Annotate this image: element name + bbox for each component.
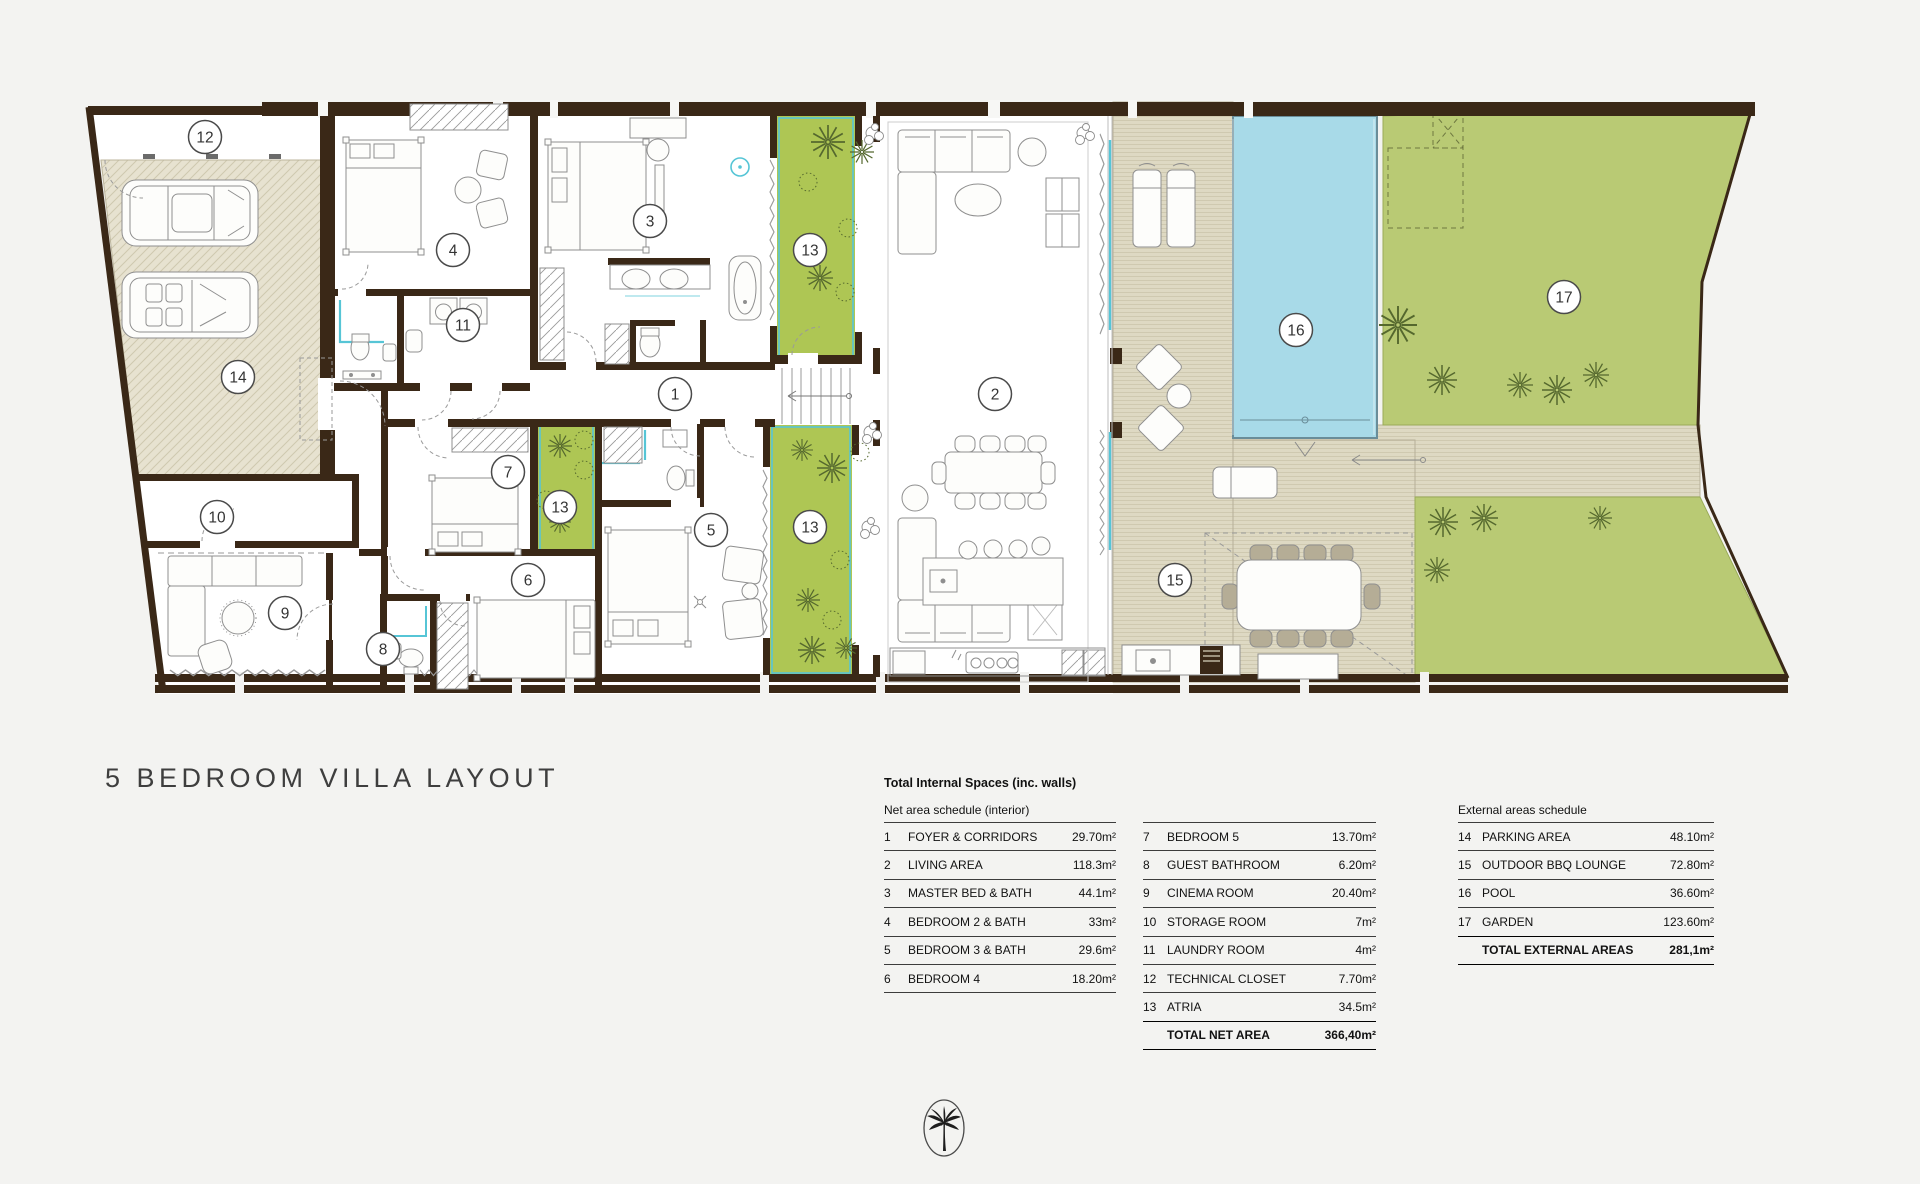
room-label-14: 14 [222, 361, 255, 394]
svg-text:2: 2 [991, 387, 1000, 404]
area-row: 9CINEMA ROOM20.40m² [1143, 879, 1376, 907]
area-row: 15OUTDOOR BBQ LOUNGE72.80m² [1458, 850, 1714, 878]
svg-text:9: 9 [281, 606, 290, 623]
svg-text:17: 17 [1555, 290, 1572, 307]
svg-text:5: 5 [707, 523, 716, 540]
room-label-2: 2 [979, 378, 1012, 411]
room-label-9: 9 [269, 597, 302, 630]
room-label-7: 7 [492, 456, 525, 489]
svg-text:10: 10 [208, 510, 226, 527]
svg-text:4: 4 [449, 243, 458, 260]
svg-text:14: 14 [229, 370, 247, 387]
car-convertible [122, 272, 258, 338]
room-label-13: 13 [794, 234, 827, 267]
area-row: 16POOL36.60m² [1458, 879, 1714, 907]
svg-text:13: 13 [801, 520, 818, 537]
room-label-10: 10 [201, 501, 234, 534]
room-label-13: 13 [794, 511, 827, 544]
internal-spaces-heading: Total Internal Spaces (inc. walls) [884, 776, 1076, 790]
svg-text:12: 12 [196, 130, 213, 147]
room-label-5: 5 [695, 514, 728, 547]
external-schedule-heading: External areas schedule [1458, 803, 1587, 817]
net-area-table-right: 7BEDROOM 513.70m²8GUEST BATHROOM6.20m²9C… [1143, 822, 1376, 1050]
net-total-label: TOTAL NET AREA [1167, 1028, 1325, 1042]
area-row: 7BEDROOM 513.70m² [1143, 822, 1376, 850]
external-area-table: 14PARKING AREA48.10m²15OUTDOOR BBQ LOUNG… [1458, 822, 1714, 965]
pool [1233, 116, 1377, 456]
svg-text:11: 11 [455, 318, 471, 335]
svg-text:8: 8 [379, 642, 388, 659]
room-label-8: 8 [367, 633, 400, 666]
room-label-1: 1 [659, 378, 692, 411]
room-label-11: 11 [447, 309, 480, 342]
svg-text:16: 16 [1287, 323, 1304, 340]
area-row: 14PARKING AREA48.10m² [1458, 822, 1714, 850]
room-label-6: 6 [512, 564, 545, 597]
garden-upper [1383, 104, 1753, 425]
area-row: 10STORAGE ROOM7m² [1143, 907, 1376, 935]
net-total-row: TOTAL NET AREA 366,40m² [1143, 1021, 1376, 1050]
room-label-16: 16 [1280, 314, 1313, 347]
area-row: 3MASTER BED & BATH44.1m² [884, 879, 1116, 907]
floor-plan-drawing: 12144113131271310513698151617 [0, 0, 1920, 760]
area-row: 8GUEST BATHROOM6.20m² [1143, 850, 1376, 878]
car-suv [122, 180, 258, 246]
area-row: 12TECHNICAL CLOSET7.70m² [1143, 964, 1376, 992]
area-row: 6BEDROOM 418.20m² [884, 964, 1116, 992]
net-schedule-heading: Net area schedule (interior) [884, 803, 1029, 817]
room-label-12: 12 [189, 121, 222, 154]
svg-text:7: 7 [504, 465, 513, 482]
area-row: 1FOYER & CORRIDORS29.70m² [884, 822, 1116, 850]
room-label-17: 17 [1548, 281, 1581, 314]
svg-text:3: 3 [646, 214, 655, 231]
net-area-table-left: 1FOYER & CORRIDORS29.70m²2LIVING AREA118… [884, 822, 1116, 993]
area-row: 5BEDROOM 3 & BATH29.6m² [884, 936, 1116, 964]
svg-text:6: 6 [524, 573, 533, 590]
garden-lower [1415, 497, 1788, 678]
area-row: 4BEDROOM 2 & BATH33m² [884, 907, 1116, 935]
area-row: 2LIVING AREA118.3m² [884, 850, 1116, 878]
bedroom4 [474, 597, 595, 681]
svg-text:13: 13 [801, 243, 818, 260]
area-row: 13ATRIA34.5m² [1143, 992, 1376, 1020]
area-row: 17GARDEN123.60m² [1458, 907, 1714, 935]
room-label-3: 3 [634, 205, 667, 238]
external-total-row: TOTAL EXTERNAL AREAS 281,1m² [1458, 936, 1714, 965]
net-total-value: 366,40m² [1325, 1028, 1376, 1042]
room-label-13: 13 [544, 491, 577, 524]
svg-text:1: 1 [671, 387, 680, 404]
palm-tree-icon [915, 1093, 973, 1163]
floor-plan: 12144113131271310513698151617 [0, 0, 1920, 760]
page-title: 5 BEDROOM VILLA LAYOUT [105, 763, 559, 794]
room-label-4: 4 [437, 234, 470, 267]
room-label-15: 15 [1159, 564, 1192, 597]
svg-text:13: 13 [551, 500, 568, 517]
external-total-label: TOTAL EXTERNAL AREAS [1482, 943, 1669, 957]
external-total-value: 281,1m² [1669, 943, 1714, 957]
svg-text:15: 15 [1166, 573, 1183, 590]
area-row: 11LAUNDRY ROOM4m² [1143, 936, 1376, 964]
